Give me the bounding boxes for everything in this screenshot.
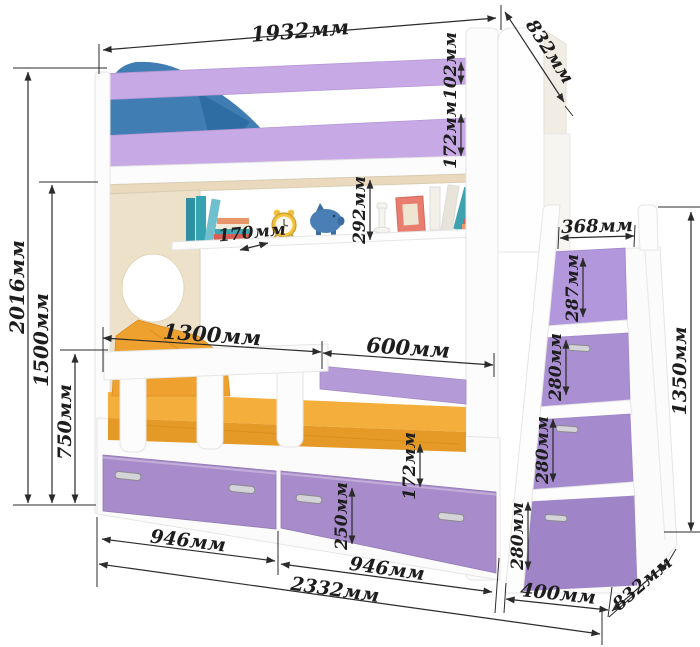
dim-step-4-height: 280мм: [508, 502, 528, 571]
piggy-snout: [338, 217, 345, 226]
candlestick-stem: [379, 208, 385, 229]
dim-label-step-2-height: 280мм: [546, 333, 566, 402]
dim-label-base-panel-height: 172мм: [400, 432, 420, 500]
oval-cutout: [122, 254, 184, 322]
dim-label-step-3-height: 280мм: [533, 416, 553, 485]
dim-label-total-length: 2332мм: [288, 573, 380, 607]
dim-label-step-4-height: 280мм: [508, 502, 528, 571]
dim-step-2-height: 280мм: [546, 333, 566, 402]
ext-tick: [634, 225, 635, 247]
stair-handle: [545, 514, 567, 522]
piggy-eye: [333, 215, 336, 218]
diagram-canvas: 1932мм 832мм 102мм 172мм 2016мм 1500мм 7…: [0, 0, 700, 647]
book: [186, 198, 195, 241]
dim-stairs-top-depth: 368мм: [560, 215, 634, 238]
dim-label-upper-rail-height: 172мм: [441, 101, 461, 169]
candlestick: [374, 203, 390, 233]
dim-drawer-height: 250мм: [332, 482, 352, 551]
dim-label-mattress-right-length: 600мм: [366, 332, 451, 363]
dim-label-lower-section-height: 750мм: [54, 384, 76, 460]
dim-label-upper-bunk-height: 1500мм: [29, 293, 53, 387]
photo-frame: [396, 196, 425, 233]
ext-tick: [504, 583, 506, 613]
dim-label-drawer-height: 250мм: [332, 482, 352, 551]
dim-label-shelf-space-height: 292мм: [350, 176, 370, 245]
stair-handle: [556, 425, 578, 433]
book: [430, 187, 440, 230]
book: [196, 196, 206, 241]
safety-rail: [104, 344, 328, 452]
dim-label-stairs-top-depth: 368мм: [561, 215, 633, 238]
dim-upper-bunk-height: 1500мм: [29, 185, 53, 503]
dim-label-stairs-height: 1350мм: [669, 326, 691, 415]
piggy-bank: [310, 203, 345, 235]
dim-label-total-height: 2016мм: [5, 240, 29, 335]
dim-step-3-height: 280мм: [533, 416, 553, 485]
dim-top-rail-height: 102мм: [441, 32, 461, 100]
dim-total-height: 2016мм: [5, 72, 29, 503]
stair-handle: [568, 344, 590, 352]
dim-label-step-1-height: 287мм: [563, 254, 583, 323]
dim-label-top-rail-height: 102мм: [441, 32, 461, 100]
dim-bed-length-top: 1932мм: [103, 14, 496, 50]
dim-base-panel-height: 172мм: [400, 432, 420, 500]
bed-drawing: [95, 28, 677, 593]
dim-lower-section-height: 750мм: [54, 354, 76, 503]
dim-label-bed-length-top: 1932мм: [250, 14, 350, 47]
frame-inner: [402, 203, 418, 225]
piggy-body: [310, 209, 342, 233]
dim-shelf-space-height: 292мм: [350, 176, 370, 245]
bunk-bed-dimension-diagram: 1932мм 832мм 102мм 172мм 2016мм 1500мм 7…: [0, 0, 700, 647]
candlestick-base: [374, 227, 390, 233]
stairs: [505, 205, 677, 593]
dim-upper-rail-height: 172мм: [441, 101, 461, 169]
stair-riser-4: [518, 496, 637, 591]
stair-riser-1: [546, 248, 627, 326]
dim-step-1-height: 287мм: [563, 254, 583, 323]
stairs-right-post: [638, 205, 658, 250]
lower-back-rail: [320, 366, 466, 404]
